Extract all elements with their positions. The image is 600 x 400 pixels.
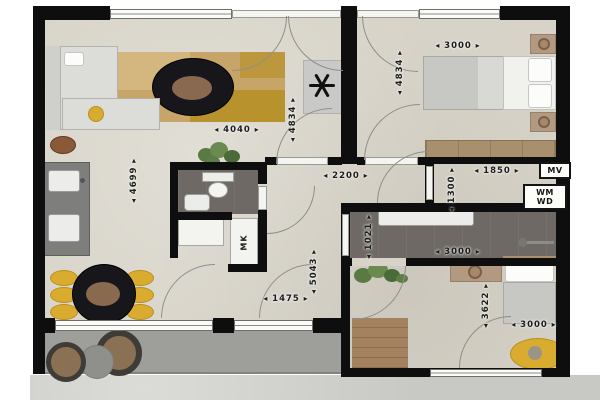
- window: [110, 9, 232, 19]
- bed-pillow: [528, 84, 552, 108]
- bed-pillow: [528, 58, 552, 82]
- shower-head: [518, 238, 527, 247]
- washbasin: [184, 194, 210, 211]
- kitchen-faucet: [80, 178, 85, 183]
- wall: [341, 6, 357, 164]
- dim-utility-depth: 1021: [364, 215, 374, 259]
- exterior-pavement: [30, 375, 600, 400]
- wall: [213, 318, 234, 333]
- window: [430, 369, 542, 377]
- wall: [258, 162, 267, 184]
- sliding-door: [55, 320, 213, 331]
- wm-wd-label: WM WD: [523, 184, 567, 210]
- sofa-chaise: [62, 98, 160, 130]
- wd-text: WD: [537, 197, 553, 206]
- dim-living-depth: 4699: [129, 159, 139, 203]
- mv-label: MV: [539, 162, 571, 179]
- wall: [170, 162, 267, 170]
- bed-fold: [478, 57, 503, 109]
- dim-living-wall: 4834: [288, 98, 298, 142]
- bathtub: [378, 210, 474, 226]
- mk-label: MK: [240, 223, 249, 263]
- dim-living-width: 4040: [205, 125, 269, 135]
- dim-utility-width: 3000: [426, 247, 490, 257]
- wall: [33, 6, 45, 374]
- wall: [45, 318, 55, 333]
- wall: [170, 212, 232, 220]
- dim-tech-width: 1850: [466, 166, 528, 176]
- balcony-pouf: [46, 342, 86, 382]
- door-threshold: [342, 214, 349, 256]
- dining-centerpiece: [86, 282, 120, 306]
- bathroom-closet: [178, 218, 224, 246]
- shower-rail: [524, 241, 554, 244]
- floor-plan: 4040 4699 4834 3000 4834 2200 1850 1300 …: [0, 0, 600, 400]
- mv-text: MV: [547, 166, 562, 175]
- toilet-bowl: [208, 182, 228, 198]
- bedroom2-rug-item: [528, 346, 542, 360]
- sliding-door: [234, 320, 313, 331]
- dim-entry-depth: 5043: [309, 250, 319, 294]
- wall: [228, 264, 267, 272]
- dim-hall-width: 2200: [314, 171, 378, 181]
- dim-bedroom2-depth: 3622: [481, 284, 491, 328]
- kitchen-sink: [48, 170, 80, 192]
- door-threshold: [258, 186, 267, 210]
- sofa-pillow: [64, 52, 84, 66]
- wall: [170, 162, 178, 258]
- side-table: [50, 136, 76, 154]
- window: [419, 9, 500, 19]
- dim-bedroom2-width: 3000: [506, 320, 562, 330]
- nightstand: [538, 38, 550, 50]
- toilet-tank: [202, 172, 234, 182]
- bedside-stool: [468, 265, 482, 279]
- nightstand: [538, 116, 550, 128]
- wall: [258, 210, 267, 272]
- bedroom2-wood-mat: [352, 318, 408, 368]
- wm-text: WM: [536, 188, 554, 197]
- dim-entry-width: 1475: [256, 294, 316, 304]
- kitchen-cooktop: [48, 214, 80, 242]
- wall: [313, 318, 345, 333]
- door-opening: [352, 258, 406, 266]
- coffee-table-tray: [172, 76, 212, 100]
- dim-tech-depth: 1300: [447, 168, 457, 212]
- dim-bedroom1-width: 3000: [426, 41, 490, 51]
- sofa-cushion-yellow: [88, 106, 104, 122]
- dim-bedroom1-depth: 4834: [395, 51, 405, 95]
- wall: [425, 157, 556, 164]
